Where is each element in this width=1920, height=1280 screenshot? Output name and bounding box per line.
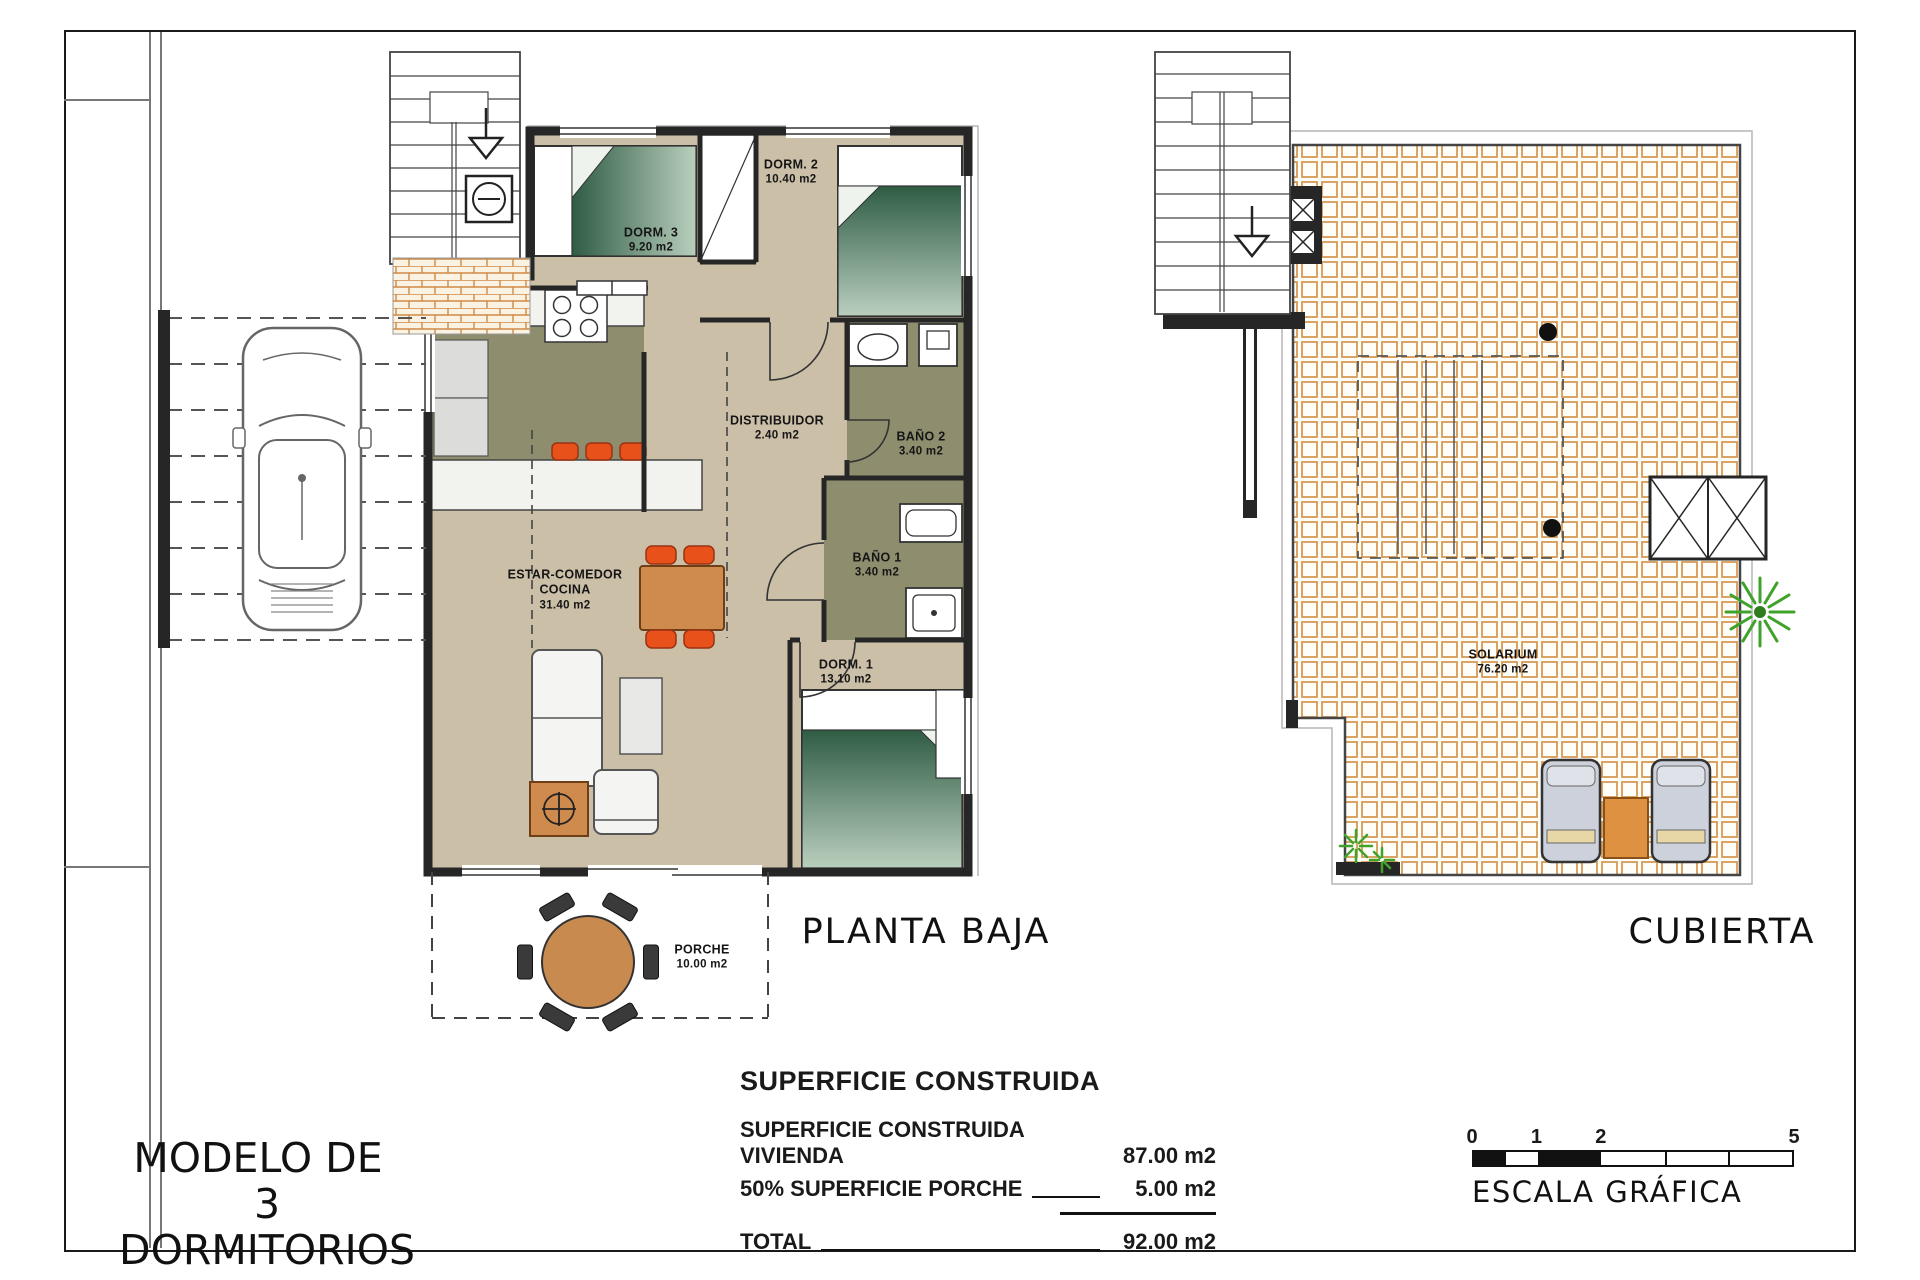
roof-staircase [1155,52,1290,314]
coffee-table [620,678,662,754]
dining-chair [684,630,714,648]
area-table: SUPERFICIE CONSTRUIDA SUPERFICIE CONSTRU… [740,1066,1216,1255]
model-title: MODELO DE 3 DORMITORIOS [88,1136,428,1274]
subtotal-rule [1060,1212,1216,1215]
sun-lounger [1652,760,1710,862]
area-table-row: 50% SUPERFICIE PORCHE 5.00 m2 [740,1176,1216,1202]
roof-drain [1539,323,1557,341]
armchair [594,770,658,834]
room-label-bano1: BAÑO 1 3.40 m2 [852,550,901,579]
parking-side-wall [158,310,170,648]
dining-chair [684,546,714,564]
room-label-dorm1: DORM. 1 13.10 m2 [819,657,873,686]
ground-floor-title: PLANTA BAJA [802,912,1051,952]
entry-paving [393,258,530,334]
skylight [1650,477,1766,559]
floor-plan-sheet: DORM. 3 9.20 m2 DORM. 2 10.40 m2 DISTRIB… [0,0,1920,1280]
scale-bar-graphic [1472,1150,1794,1167]
wardrobe [936,690,964,778]
room-label-porche: PORCHE 10.00 m2 [674,942,729,971]
roof-drain [1543,519,1561,537]
scale-label: ESCALA GRÁFICA [1472,1175,1794,1209]
exterior-staircase [390,52,520,264]
leader-line [1032,1196,1100,1198]
ground-floor-plan [158,52,978,1032]
bathroom2-fixtures [849,324,957,366]
room-label-distribuidor: DISTRIBUIDOR 2.40 m2 [730,413,824,442]
roof-title: CUBIERTA [1629,912,1816,952]
sun-lounger [1542,760,1600,862]
dining-chair [646,546,676,564]
water-heater [466,176,512,222]
area-table-total-row: TOTAL 92.00 m2 [740,1229,1216,1255]
porch-table-set [518,892,659,1032]
bar-stool [552,443,578,460]
roof-edge-wall [1286,700,1298,728]
leader-line [821,1249,1100,1251]
bed-dorm2 [838,146,962,316]
scale-bar: 0 1 2 5 ESCALA GRÁFICA [1472,1126,1794,1209]
patio-table [1604,798,1648,858]
room-label-estar-comedor: ESTAR-COMEDOR COCINA 31.40 m2 [508,568,623,613]
room-label-solarium: SOLARIUM 76.20 m2 [1468,647,1537,676]
room-label-dorm3: DORM. 3 9.20 m2 [624,225,678,254]
area-table-heading: SUPERFICIE CONSTRUIDA [740,1066,1216,1097]
dining-chair [646,630,676,648]
room-label-dorm2: DORM. 2 10.40 m2 [764,157,818,186]
roof-plan [1155,52,1794,884]
dining-table [640,566,724,630]
room-label-bano2: BAÑO 2 3.40 m2 [896,429,945,458]
bar-stool [586,443,612,460]
area-table-row: SUPERFICIE CONSTRUIDA VIVIENDA 87.00 m2 [740,1117,1216,1169]
scale-tick-labels: 0 1 2 5 [1472,1126,1794,1150]
car [233,328,371,630]
